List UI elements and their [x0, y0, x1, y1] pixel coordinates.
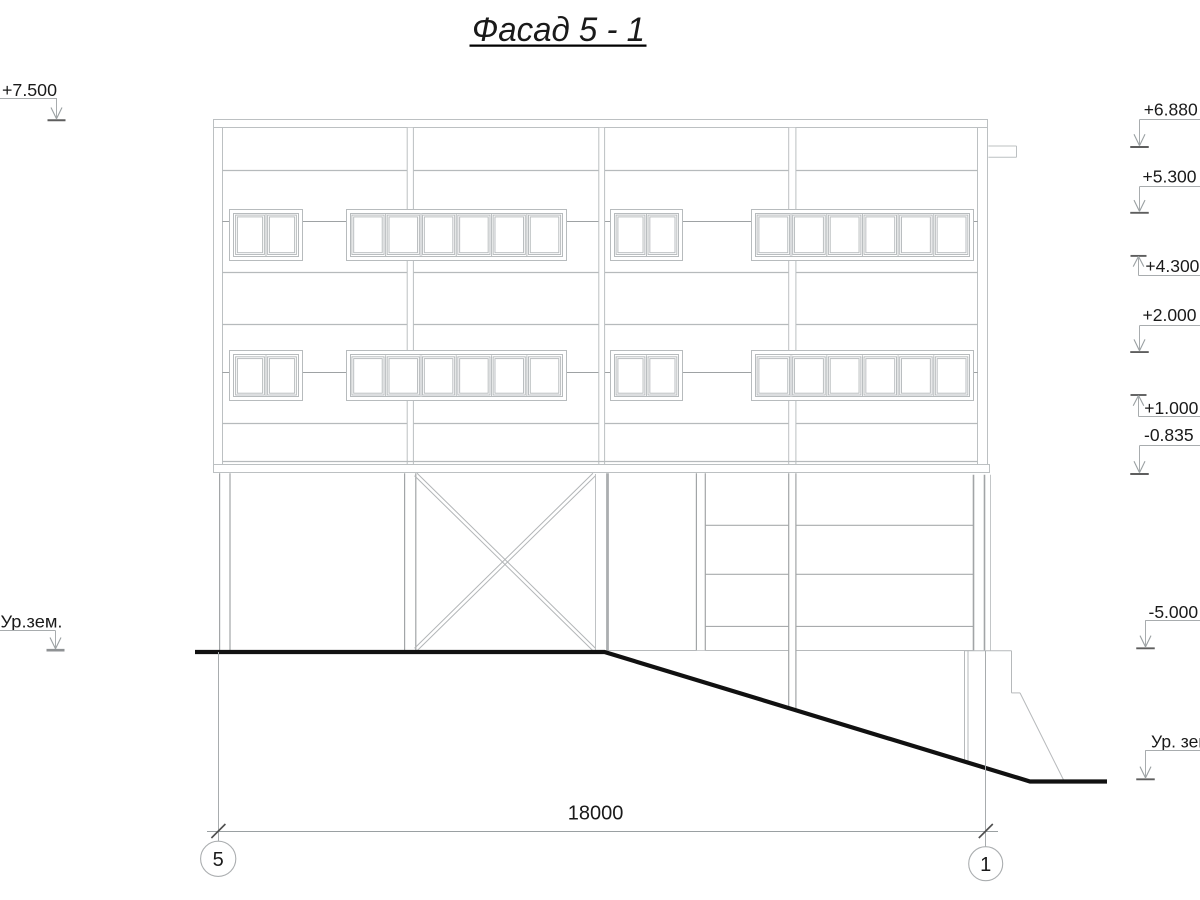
svg-text:1: 1: [980, 854, 991, 876]
svg-text:+7.500: +7.500: [2, 80, 57, 100]
svg-text:18000: 18000: [568, 803, 624, 825]
svg-text:Ур.зем.: Ур.зем.: [1, 612, 63, 632]
svg-text:5: 5: [213, 849, 224, 871]
svg-text:Фасад 5 - 1: Фасад 5 - 1: [472, 11, 645, 49]
svg-text:-5.000: -5.000: [1149, 602, 1199, 622]
svg-text:Ур. зем.: Ур. зем.: [1151, 732, 1200, 752]
svg-text:+2.000: +2.000: [1143, 305, 1197, 325]
svg-text:+4.300: +4.300: [1145, 256, 1199, 276]
svg-text:+1.000: +1.000: [1144, 398, 1198, 418]
svg-text:-0.835: -0.835: [1144, 425, 1194, 445]
svg-text:+5.300: +5.300: [1143, 166, 1197, 186]
svg-text:+6.880: +6.880: [1144, 100, 1198, 120]
